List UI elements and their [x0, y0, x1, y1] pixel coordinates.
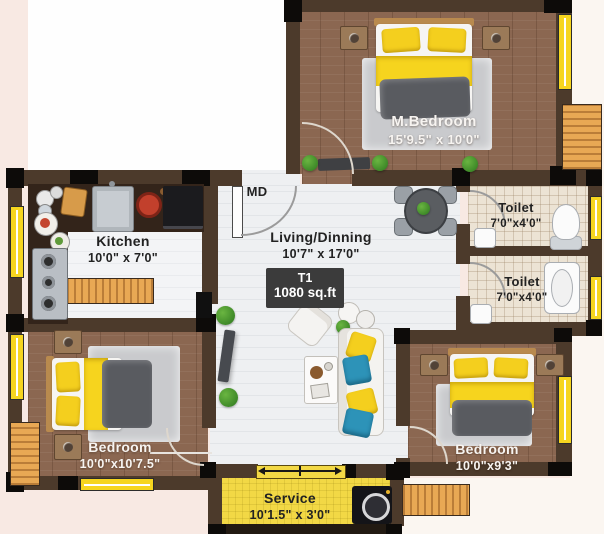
arrow-left-icon	[258, 467, 265, 475]
service-label: Service 10'1.5" x 3'0"	[210, 489, 370, 523]
wall-toilet-top	[456, 170, 602, 186]
table-plant	[417, 202, 430, 215]
unit-code: T1	[266, 271, 344, 285]
room-name: Toilet	[474, 200, 558, 217]
sliding-door-center-tick	[299, 466, 301, 476]
room-name: Bedroom	[412, 440, 562, 458]
window-bedroomleft-left	[10, 334, 24, 400]
plant	[216, 306, 235, 325]
room-dims: 10'1.5" x 3'0"	[210, 507, 370, 523]
room-dims: 10'7" x 17'0"	[236, 246, 406, 262]
wall-master-left	[286, 0, 300, 174]
window-bedroomleft-bottom	[80, 478, 154, 491]
window-toilet-bottom	[590, 276, 602, 320]
burner-icon	[42, 276, 55, 289]
wall-toilet-left-b	[456, 224, 470, 264]
toilet-bottom-label: Toilet 7'0"x4'0"	[478, 274, 566, 306]
column	[586, 320, 602, 336]
column	[58, 476, 78, 490]
sofa-cushion-blue	[342, 407, 375, 438]
coffee-table-tray	[310, 366, 323, 379]
room-dims: 7'0"x4'0"	[474, 217, 558, 232]
wall-bedroomright-top	[396, 330, 572, 344]
window-bedroomright-right	[558, 376, 572, 444]
deck-below-bedroom-right	[402, 484, 470, 516]
wall-master-top	[290, 0, 572, 12]
room-name: Service	[210, 489, 370, 507]
coffee-table-book	[310, 383, 330, 399]
room-name: Living/Dinning	[236, 228, 406, 246]
wall-service-bottom	[208, 524, 402, 534]
food-items	[40, 218, 50, 228]
bedroom-right-label: Bedroom 10'0"x9'3"	[412, 440, 562, 474]
kitchen-label: Kitchen 10'0" x 7'0"	[62, 232, 184, 266]
room-name: Kitchen	[62, 232, 184, 250]
bedroom-left-pillow	[55, 361, 81, 392]
room-name: M.Bedroom	[334, 112, 534, 132]
room-dims: 10'0" x 7'0"	[62, 250, 184, 266]
bedroom-right-duvet	[452, 400, 532, 436]
nightstand	[536, 354, 564, 376]
bedroom-left-label: Bedroom 10'0"x10'7.5"	[42, 438, 198, 472]
room-dims: 15'9.5" x 10'0"	[334, 132, 534, 149]
bedroom-right-pillow	[453, 357, 488, 379]
unit-badge: T1 1080 sq.ft	[266, 268, 344, 308]
master-bedroom-label: M.Bedroom 15'9.5" x 10'0"	[334, 112, 534, 148]
column	[394, 328, 410, 344]
exterior-white-topleft	[28, 0, 286, 170]
kitchen-wood-counter	[66, 278, 154, 304]
arrow-right-icon	[335, 467, 342, 475]
column	[554, 328, 572, 342]
master-bed-pillow	[381, 27, 421, 54]
column	[386, 524, 402, 534]
unit-area: 1080 sq.ft	[266, 285, 344, 300]
plate	[50, 186, 63, 199]
faucet-icon	[109, 181, 115, 187]
plant	[462, 156, 478, 172]
master-bed-pillow	[427, 27, 466, 53]
cooking-pot	[136, 192, 162, 218]
room-name: Toilet	[478, 274, 566, 291]
kitchen-sink	[92, 186, 134, 232]
main-door-label: MD	[240, 184, 274, 201]
water-jug	[356, 310, 375, 329]
sofa-cushion-blue	[342, 354, 372, 386]
plant	[219, 388, 238, 407]
nightstand	[420, 354, 448, 376]
wall-bedroomright-left-upper	[396, 330, 410, 426]
room-dims: 10'0"x9'3"	[412, 458, 562, 474]
bedroom-left-duvet	[102, 360, 152, 428]
column	[208, 524, 226, 534]
deck-left-of-bedroom	[10, 422, 40, 486]
floor-plan: MD M.Bedroom 15'9.5" x 10'0" Toilet 7'0"…	[0, 0, 604, 534]
window-toilet-top	[590, 196, 602, 240]
room-dims: 7'0"x4'0"	[478, 291, 566, 306]
toilet-top-label: Toilet 7'0"x4'0"	[474, 200, 558, 232]
living-label: Living/Dinning 10'7" x 17'0"	[236, 228, 406, 262]
burner-icon	[41, 254, 56, 269]
wall-bedroomleft-right-upper	[202, 318, 216, 428]
main-door-text: MD	[247, 184, 268, 199]
wall-master-bottom	[352, 170, 460, 186]
window-master-right	[558, 14, 572, 90]
column	[394, 462, 410, 478]
cutting-board	[60, 186, 88, 217]
deck-right-of-master	[562, 104, 602, 170]
column	[284, 0, 302, 22]
fridge	[163, 186, 203, 229]
room-name: Bedroom	[42, 438, 198, 456]
window-kitchen-left	[10, 206, 24, 278]
room-dims: 10'0"x10'7.5"	[42, 456, 198, 472]
bedroom-left-pillow	[55, 395, 81, 426]
column	[544, 0, 572, 13]
washing-machine-knob	[386, 490, 390, 494]
column	[6, 314, 24, 332]
sliding-door-service	[256, 465, 346, 479]
bedroom-right-pillow	[493, 357, 528, 379]
column	[586, 168, 602, 186]
nightstand	[340, 26, 368, 50]
coffee-table-cup	[324, 362, 333, 371]
plant	[372, 155, 388, 171]
tv-cabinet	[196, 292, 212, 318]
burner-icon	[41, 296, 56, 311]
nightstand	[54, 330, 82, 354]
wall-kitchen-right	[202, 186, 218, 304]
nightstand	[482, 26, 510, 50]
washbasin	[470, 304, 492, 324]
column	[6, 168, 24, 188]
